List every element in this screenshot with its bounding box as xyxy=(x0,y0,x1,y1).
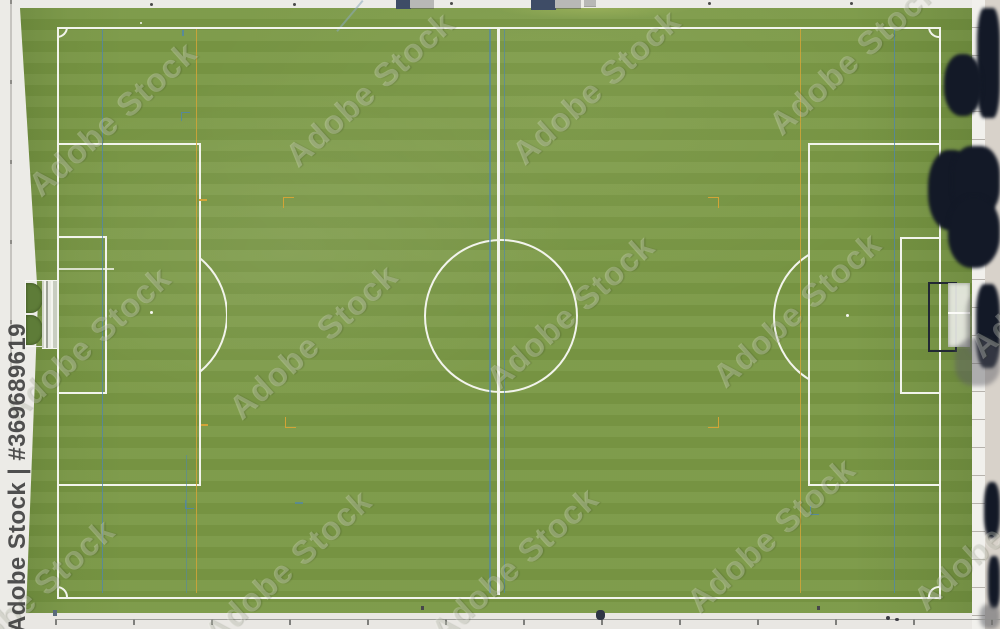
fence-post xyxy=(850,2,853,5)
tree-canopy xyxy=(948,196,1000,268)
tree-shadow xyxy=(955,338,1000,386)
penalty-spot-left xyxy=(150,311,153,314)
yellow-pitch-line xyxy=(196,29,198,593)
bottom-railing xyxy=(55,619,1000,625)
fence-post xyxy=(150,3,153,6)
yellow-tick-mark xyxy=(283,197,294,208)
blue-pitch-line xyxy=(489,29,491,593)
penalty-spot-right xyxy=(846,314,849,317)
aerial-soccer-field-photo: Adobe StockAdobe StockAdobe StockAdobe S… xyxy=(0,0,1000,629)
small-object xyxy=(895,618,899,621)
yellow-tick-mark xyxy=(285,417,296,428)
line-mark-dot xyxy=(140,22,142,24)
fence-post xyxy=(817,606,820,610)
penalty-arc-right xyxy=(770,248,808,382)
small-object xyxy=(886,616,890,620)
blue-pitch-line xyxy=(102,29,104,593)
fence-post xyxy=(450,2,453,5)
penalty-arc-left xyxy=(199,246,227,381)
blue-pitch-line xyxy=(894,29,896,593)
yellow-tick-mark xyxy=(201,424,208,426)
tree-canopy xyxy=(988,556,1000,608)
blue-pitch-line xyxy=(186,455,188,593)
blue-pitch-line xyxy=(504,29,506,593)
dugout-roof xyxy=(584,0,596,6)
goal-right xyxy=(928,282,970,348)
futsal-goal-line-left xyxy=(57,268,114,270)
yellow-tick-mark xyxy=(199,199,207,201)
fence-post xyxy=(708,2,711,5)
tree-canopy xyxy=(984,482,1000,538)
dugout-roof xyxy=(555,0,581,8)
railing-end-post xyxy=(53,610,57,616)
center-circle xyxy=(424,239,578,393)
goal-area-left xyxy=(57,236,107,394)
left-fence-line xyxy=(10,0,12,372)
dugout-roof xyxy=(410,0,434,8)
tree-shadow xyxy=(980,604,1000,629)
blue-tick-mark xyxy=(182,30,184,36)
person-on-walkway xyxy=(596,610,605,620)
fence-post xyxy=(293,3,296,6)
tree-canopy xyxy=(977,8,1000,118)
yellow-tick-mark xyxy=(708,197,719,208)
tree-canopy xyxy=(944,54,982,116)
blue-tick-mark xyxy=(295,502,303,504)
goal-net xyxy=(42,280,57,349)
yellow-pitch-line xyxy=(800,29,802,593)
blue-tick-mark xyxy=(810,506,819,515)
fence-post xyxy=(421,606,424,610)
blue-tick-mark xyxy=(181,112,190,121)
dugout-shelter xyxy=(396,0,411,9)
stock-id-watermark: Adobe Stock | #369689619 xyxy=(4,323,32,629)
yellow-tick-mark xyxy=(708,417,719,428)
dugout-shelter xyxy=(531,0,556,10)
blue-tick-mark xyxy=(185,500,194,509)
